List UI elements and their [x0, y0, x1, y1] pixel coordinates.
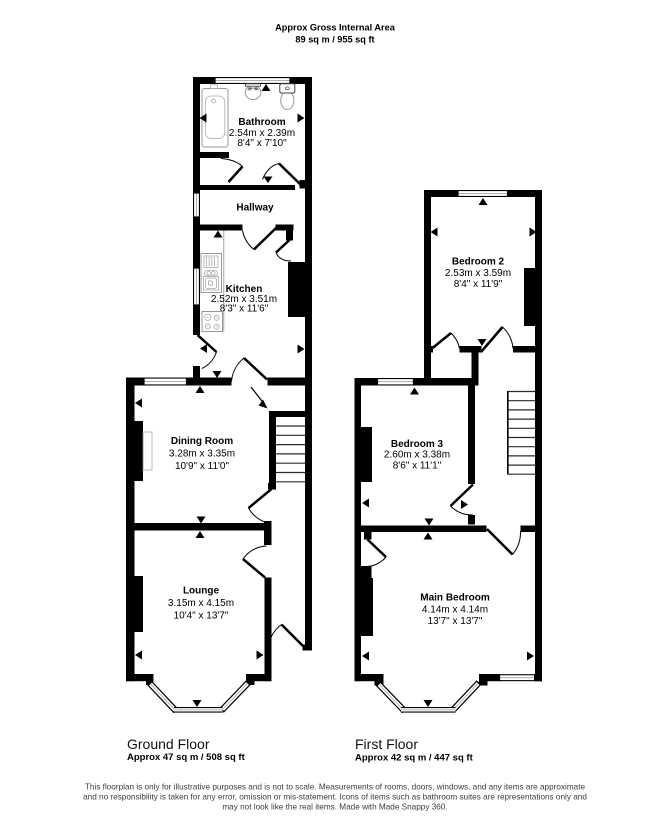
svg-text:and no responsibility is taken: and no responsibility is taken for any e…	[83, 793, 587, 802]
svg-text:may not look like the real ite: may not look like the real items. Made w…	[222, 803, 447, 812]
svg-text:Bedroom 3: Bedroom 3	[391, 439, 444, 450]
svg-text:Hallway: Hallway	[236, 203, 274, 214]
svg-text:8'6" x 11'1": 8'6" x 11'1"	[393, 461, 442, 472]
svg-text:8'4" x 7'10": 8'4" x 7'10"	[237, 138, 287, 149]
svg-text:This floorplan is only for ill: This floorplan is only for illustrative …	[85, 783, 586, 792]
svg-text:Main Bedroom: Main Bedroom	[420, 593, 490, 604]
svg-text:Approx 42 sq m / 447 sq ft: Approx 42 sq m / 447 sq ft	[355, 753, 474, 764]
svg-text:Approx 47 sq m / 508 sq ft: Approx 47 sq m / 508 sq ft	[127, 752, 246, 763]
svg-text:Ground Floor: Ground Floor	[127, 736, 210, 752]
svg-text:Dining Room: Dining Room	[171, 436, 233, 447]
svg-text:First Floor: First Floor	[355, 736, 418, 752]
svg-text:Approx Gross Internal Area: Approx Gross Internal Area	[275, 23, 396, 33]
svg-text:3.28m x 3.35m: 3.28m x 3.35m	[169, 449, 235, 460]
svg-text:13'7" x 13'7": 13'7" x 13'7"	[428, 616, 483, 627]
svg-text:2.53m x 3.59m: 2.53m x 3.59m	[445, 268, 511, 279]
svg-text:10'9" x 11'0": 10'9" x 11'0"	[175, 461, 230, 472]
svg-text:Bedroom 2: Bedroom 2	[452, 257, 505, 268]
svg-text:Bathroom: Bathroom	[238, 117, 285, 128]
svg-text:2.60m x 3.38m: 2.60m x 3.38m	[384, 450, 450, 461]
svg-text:4.14m x 4.14m: 4.14m x 4.14m	[422, 605, 488, 616]
svg-text:89 sq m / 955 sq ft: 89 sq m / 955 sq ft	[295, 35, 374, 45]
svg-text:Lounge: Lounge	[183, 586, 220, 597]
svg-text:3.15m x 4.15m: 3.15m x 4.15m	[168, 598, 234, 609]
svg-text:8'3" x 11'6": 8'3" x 11'6"	[220, 304, 269, 315]
svg-text:10'4" x 13'7": 10'4" x 13'7"	[174, 611, 229, 622]
svg-text:8'4" x 11'9": 8'4" x 11'9"	[454, 279, 503, 290]
